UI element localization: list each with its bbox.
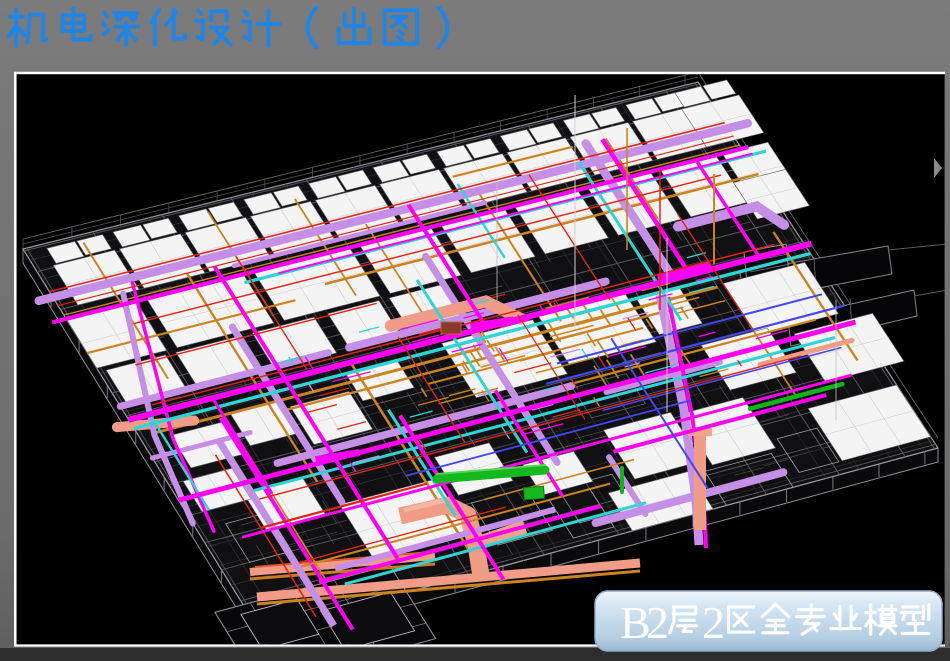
svg-text:2: 2 (702, 597, 725, 648)
svg-text:2: 2 (646, 597, 669, 648)
